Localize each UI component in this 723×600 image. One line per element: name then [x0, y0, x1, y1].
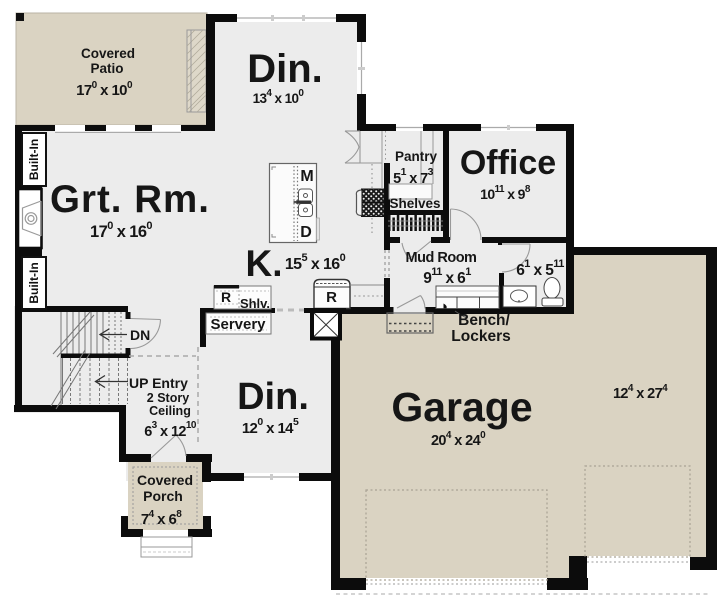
svg-text:Built-In: Built-In	[27, 262, 41, 303]
svg-text:M: M	[300, 168, 313, 185]
svg-text:Shelves: Shelves	[389, 196, 440, 211]
svg-text:DN: DN	[130, 327, 150, 343]
svg-text:170 x 100: 170 x 100	[76, 80, 133, 99]
svg-text:Patio: Patio	[90, 61, 123, 76]
svg-text:UP Entry: UP Entry	[129, 375, 188, 391]
svg-text:Garage: Garage	[391, 384, 532, 430]
svg-text:Lockers: Lockers	[451, 328, 510, 345]
svg-text:Shlv.: Shlv.	[240, 296, 270, 311]
svg-text:124 x 274: 124 x 274	[613, 383, 668, 402]
svg-text:Din.: Din.	[247, 47, 323, 91]
svg-text:Office: Office	[460, 144, 556, 182]
svg-text:170 x 160: 170 x 160	[90, 220, 152, 241]
svg-text:Bench/: Bench/	[458, 312, 510, 329]
svg-text:Pantry: Pantry	[395, 149, 438, 164]
svg-text:2 Story: 2 Story	[147, 391, 189, 405]
svg-text:Covered: Covered	[137, 472, 193, 488]
svg-text:155 x 160: 155 x 160	[285, 252, 346, 273]
svg-text:1011 x 98: 1011 x 98	[480, 184, 531, 202]
svg-text:K.: K.	[246, 243, 283, 284]
svg-text:Mud Room: Mud Room	[406, 250, 477, 266]
svg-text:Servery: Servery	[210, 316, 266, 333]
svg-text:Porch: Porch	[143, 488, 183, 504]
svg-text:120 x 145: 120 x 145	[242, 416, 299, 437]
svg-text:R: R	[221, 289, 231, 305]
svg-text:134 x 100: 134 x 100	[253, 88, 305, 106]
svg-text:911 x 61: 911 x 61	[423, 266, 471, 287]
svg-text:Built-In: Built-In	[27, 139, 41, 180]
svg-text:204 x 240: 204 x 240	[431, 430, 486, 449]
svg-text:Grt. Rm.: Grt. Rm.	[50, 178, 210, 221]
svg-text:R: R	[326, 289, 337, 306]
svg-text:74 x 68: 74 x 68	[141, 509, 182, 528]
svg-text:D: D	[300, 224, 312, 241]
svg-text:Covered: Covered	[81, 46, 135, 61]
svg-text:Din.: Din.	[237, 376, 309, 418]
svg-text:Ceiling: Ceiling	[149, 404, 191, 418]
